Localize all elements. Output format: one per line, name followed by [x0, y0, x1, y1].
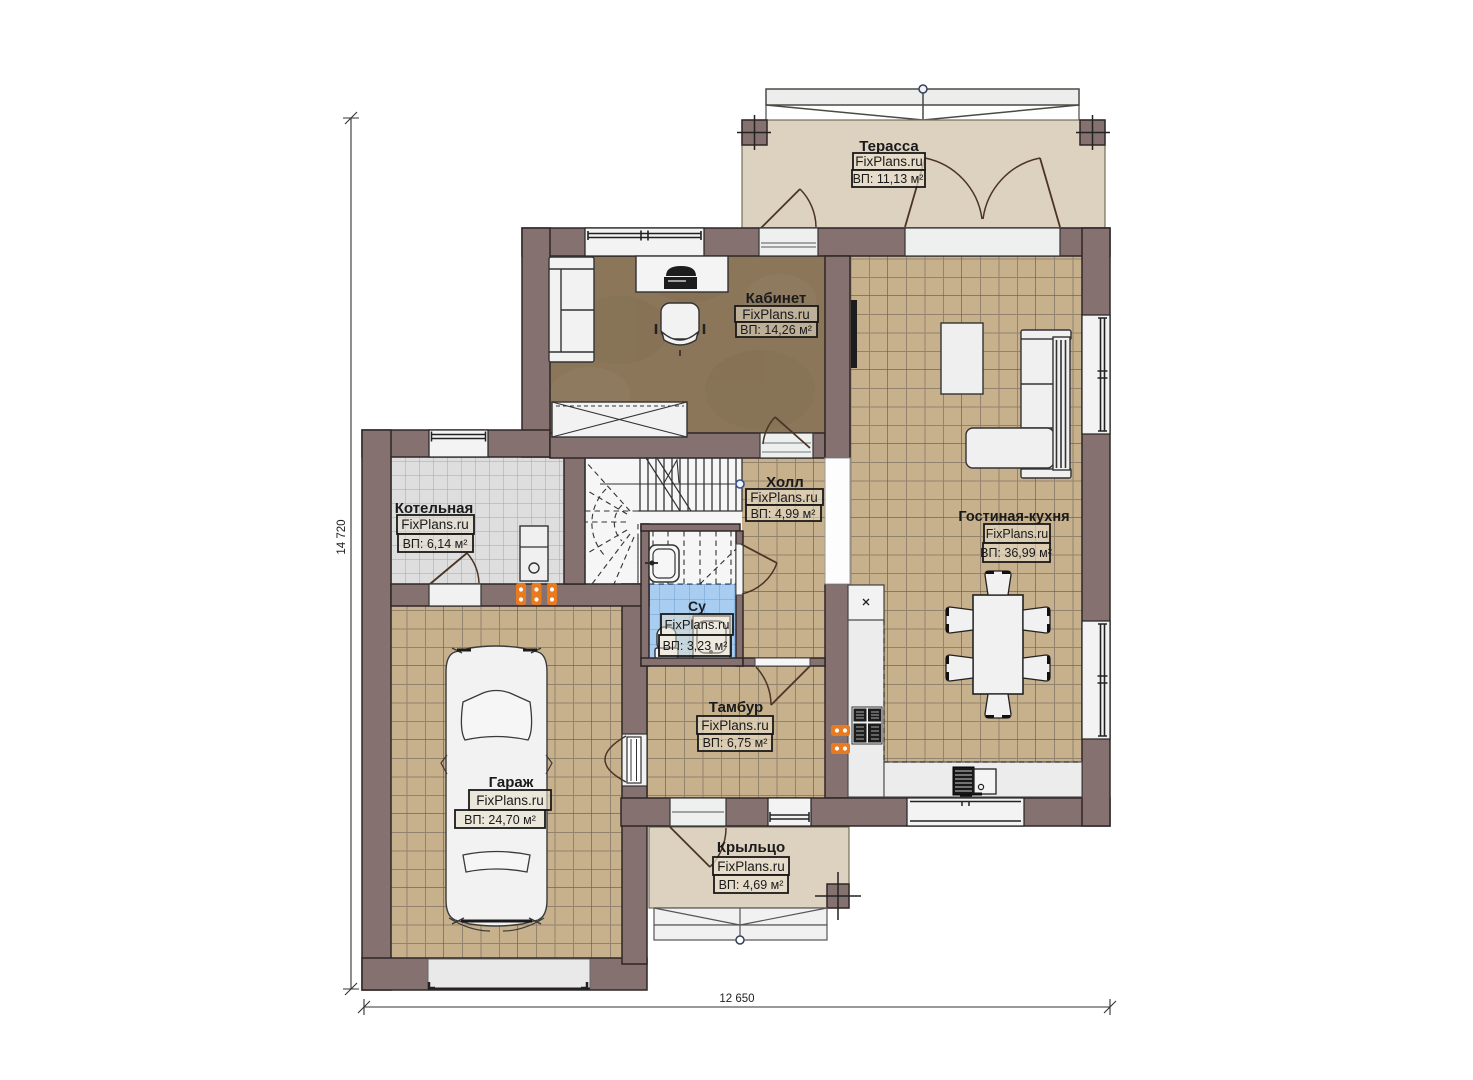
svg-text:FixPlans.ru: FixPlans.ru	[986, 527, 1049, 541]
svg-text:Тамбур: Тамбур	[709, 699, 763, 716]
svg-text:Гараж: Гараж	[489, 774, 534, 791]
svg-text:ВП: 11,13 м²: ВП: 11,13 м²	[853, 172, 924, 186]
svg-text:ВП: 4,99 м²: ВП: 4,99 м²	[751, 507, 816, 521]
svg-text:FixPlans.ru: FixPlans.ru	[855, 154, 923, 169]
svg-text:Су: Су	[688, 598, 706, 614]
svg-text:ВП: 24,70 м²: ВП: 24,70 м²	[464, 813, 536, 827]
svg-text:FixPlans.ru: FixPlans.ru	[717, 859, 785, 874]
svg-text:ВП: 36,99 м²: ВП: 36,99 м²	[980, 546, 1052, 560]
svg-text:FixPlans.ru: FixPlans.ru	[742, 307, 810, 322]
svg-text:12 650: 12 650	[719, 993, 754, 1005]
svg-text:FixPlans.ru: FixPlans.ru	[401, 517, 469, 532]
svg-text:FixPlans.ru: FixPlans.ru	[701, 718, 769, 733]
svg-text:FixPlans.ru: FixPlans.ru	[750, 490, 818, 505]
svg-text:ВП: 6,75 м²: ВП: 6,75 м²	[703, 736, 768, 750]
svg-text:Кабинет: Кабинет	[746, 290, 807, 307]
svg-text:Гостиная-кухня: Гостиная-кухня	[958, 509, 1069, 525]
svg-text:Крыльцо: Крыльцо	[717, 839, 785, 856]
svg-text:FixPlans.ru: FixPlans.ru	[664, 617, 729, 632]
svg-text:ВП: 14,26 м²: ВП: 14,26 м²	[740, 323, 812, 337]
svg-text:ВП: 3,23 м²: ВП: 3,23 м²	[663, 639, 728, 653]
svg-text:ВП: 6,14 м²: ВП: 6,14 м²	[403, 537, 468, 551]
svg-text:FixPlans.ru: FixPlans.ru	[476, 793, 544, 808]
svg-text:14 720: 14 720	[336, 519, 348, 554]
svg-text:ВП: 4,69 м²: ВП: 4,69 м²	[719, 878, 784, 892]
